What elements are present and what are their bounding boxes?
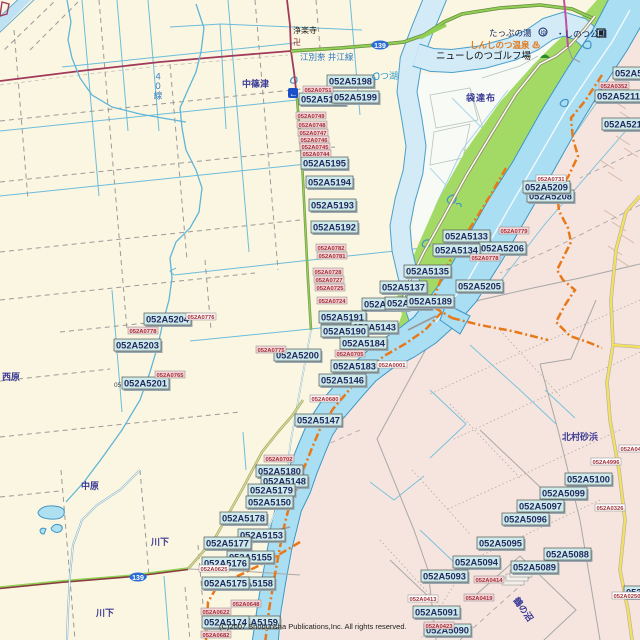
svg-text:川下: 川下	[95, 608, 114, 618]
svg-text:052A0731: 052A0731	[538, 177, 565, 183]
svg-text:ニューしのつゴルフ場: ニューしのつゴルフ場	[436, 50, 532, 62]
svg-text:052A5147: 052A5147	[297, 416, 340, 426]
svg-text:袋達布: 袋達布	[465, 92, 496, 103]
svg-text:たっぷの湯: たっぷの湯	[489, 28, 532, 38]
svg-text:052A0779: 052A0779	[501, 229, 528, 235]
svg-text:052A5204: 052A5204	[146, 315, 189, 325]
svg-text:052A5195: 052A5195	[303, 159, 346, 169]
svg-text:江別奈 井江線: 江別奈 井江線	[300, 52, 354, 62]
svg-text:052A0728: 052A0728	[315, 270, 342, 276]
svg-text:052A5212: 052A5212	[615, 69, 640, 79]
svg-text:052A0724: 052A0724	[319, 299, 347, 305]
svg-text:052A0414: 052A0414	[476, 578, 504, 584]
svg-text:052A0419: 052A0419	[466, 596, 493, 602]
svg-text:052A5194: 052A5194	[308, 178, 351, 188]
svg-text:052A0625: 052A0625	[201, 567, 228, 573]
svg-text:052A0682: 052A0682	[203, 633, 230, 639]
svg-text:川下: 川下	[150, 537, 169, 547]
svg-text:052A0705: 052A0705	[337, 352, 364, 358]
svg-text:052A5209: 052A5209	[525, 183, 568, 193]
svg-text:052A0497: 052A0497	[621, 447, 640, 453]
svg-text:052A0782: 052A0782	[318, 246, 345, 252]
svg-text:052A0781: 052A0781	[319, 254, 346, 260]
svg-text:052A0744: 052A0744	[303, 152, 331, 158]
svg-text:←: ←	[289, 89, 298, 99]
svg-text:052A5210: 052A5210	[604, 120, 640, 130]
svg-text:052A0765: 052A0765	[157, 373, 184, 379]
svg-text:052A0776: 052A0776	[188, 315, 215, 321]
svg-text:052A0751: 052A0751	[305, 88, 332, 94]
svg-text:052A5193: 052A5193	[311, 201, 354, 211]
svg-text:中原: 中原	[81, 480, 99, 491]
svg-text:052A0778: 052A0778	[472, 256, 499, 262]
svg-text:北村砂浜: 北村砂浜	[562, 431, 598, 442]
svg-text:052A5097: 052A5097	[519, 502, 562, 512]
svg-text:052A5178: 052A5178	[222, 514, 265, 524]
svg-text:052A0326: 052A0326	[597, 506, 624, 512]
svg-text:052A5093: 052A5093	[423, 572, 466, 582]
svg-text:139: 139	[132, 575, 144, 582]
svg-text:052A5201: 052A5201	[124, 379, 167, 389]
svg-text:052A0727: 052A0727	[316, 278, 343, 284]
svg-text:052A5096: 052A5096	[504, 515, 547, 525]
svg-text:052A5146: 052A5146	[321, 376, 364, 386]
svg-text:052A0413: 052A0413	[410, 597, 437, 603]
svg-text:052A0749: 052A0749	[298, 114, 325, 120]
svg-text:052A5175: 052A5175	[204, 579, 247, 589]
svg-text:つ湖: つ湖	[380, 71, 398, 81]
svg-text:４０線: ４０線	[153, 72, 163, 101]
svg-text:052A0352: 052A0352	[601, 84, 628, 90]
svg-text:052A5095: 052A5095	[479, 539, 522, 549]
svg-text:052A5089: 052A5089	[513, 563, 556, 573]
svg-text:052A0622: 052A0622	[203, 610, 230, 616]
svg-text:052A5183: 052A5183	[333, 362, 376, 372]
svg-text:05: 05	[114, 382, 122, 389]
svg-text:しんしのつ温泉 ♨: しんしのつ温泉 ♨	[470, 40, 541, 50]
svg-text:052A5203: 052A5203	[116, 341, 159, 351]
svg-text:052A5184: 052A5184	[342, 339, 385, 349]
svg-text:052A5189: 052A5189	[409, 297, 452, 307]
svg-text:052A0748: 052A0748	[299, 123, 326, 129]
svg-text:052A5100: 052A5100	[567, 475, 610, 485]
svg-text:中篠津: 中篠津	[242, 78, 269, 89]
svg-text:052A0778: 052A0778	[130, 329, 157, 335]
svg-text:052A0423: 052A0423	[426, 624, 453, 630]
svg-text:052A0001: 052A0001	[379, 363, 406, 369]
svg-text:052A4996: 052A4996	[593, 460, 620, 466]
svg-text:052A5206: 052A5206	[481, 244, 524, 254]
svg-text:西原: 西原	[2, 372, 20, 382]
svg-text:052A0725: 052A0725	[317, 286, 344, 292]
svg-text:052A5150: 052A5150	[248, 498, 291, 508]
svg-text:052A5199: 052A5199	[334, 93, 377, 103]
svg-text:052A5137: 052A5137	[382, 283, 425, 293]
svg-text:052A5091: 052A5091	[415, 608, 458, 618]
svg-text:052A0775: 052A0775	[258, 348, 285, 354]
svg-text:052A0702: 052A0702	[266, 457, 293, 463]
svg-text:052A5177: 052A5177	[206, 539, 249, 549]
svg-text:052A5198: 052A5198	[329, 77, 372, 87]
svg-text:052A5088: 052A5088	[546, 550, 589, 560]
svg-text:052A5133: 052A5133	[445, 232, 488, 242]
svg-text:052A5099: 052A5099	[542, 489, 585, 499]
svg-text:052A5135: 052A5135	[406, 267, 449, 277]
svg-text:139: 139	[374, 43, 386, 50]
svg-text:052A5094: 052A5094	[455, 558, 498, 568]
svg-text:浄楽寺: 浄楽寺	[293, 25, 317, 35]
svg-text:052A5190: 052A5190	[323, 327, 366, 337]
svg-text:052A5211: 052A5211	[597, 92, 640, 102]
svg-text:卍: 卍	[293, 38, 301, 47]
svg-text:052A0250: 052A0250	[614, 594, 640, 600]
svg-text:052A5192: 052A5192	[313, 223, 356, 233]
svg-text:ゆ: ゆ	[541, 30, 547, 37]
svg-text:(C)2007 Shobunsha Publications: (C)2007 Shobunsha Publications,Inc. All …	[219, 622, 407, 631]
svg-text:052A5179: 052A5179	[250, 486, 293, 496]
svg-text:052A0648: 052A0648	[233, 602, 260, 608]
svg-text:052A0680: 052A0680	[312, 397, 339, 403]
svg-text:052A5205: 052A5205	[458, 282, 501, 292]
